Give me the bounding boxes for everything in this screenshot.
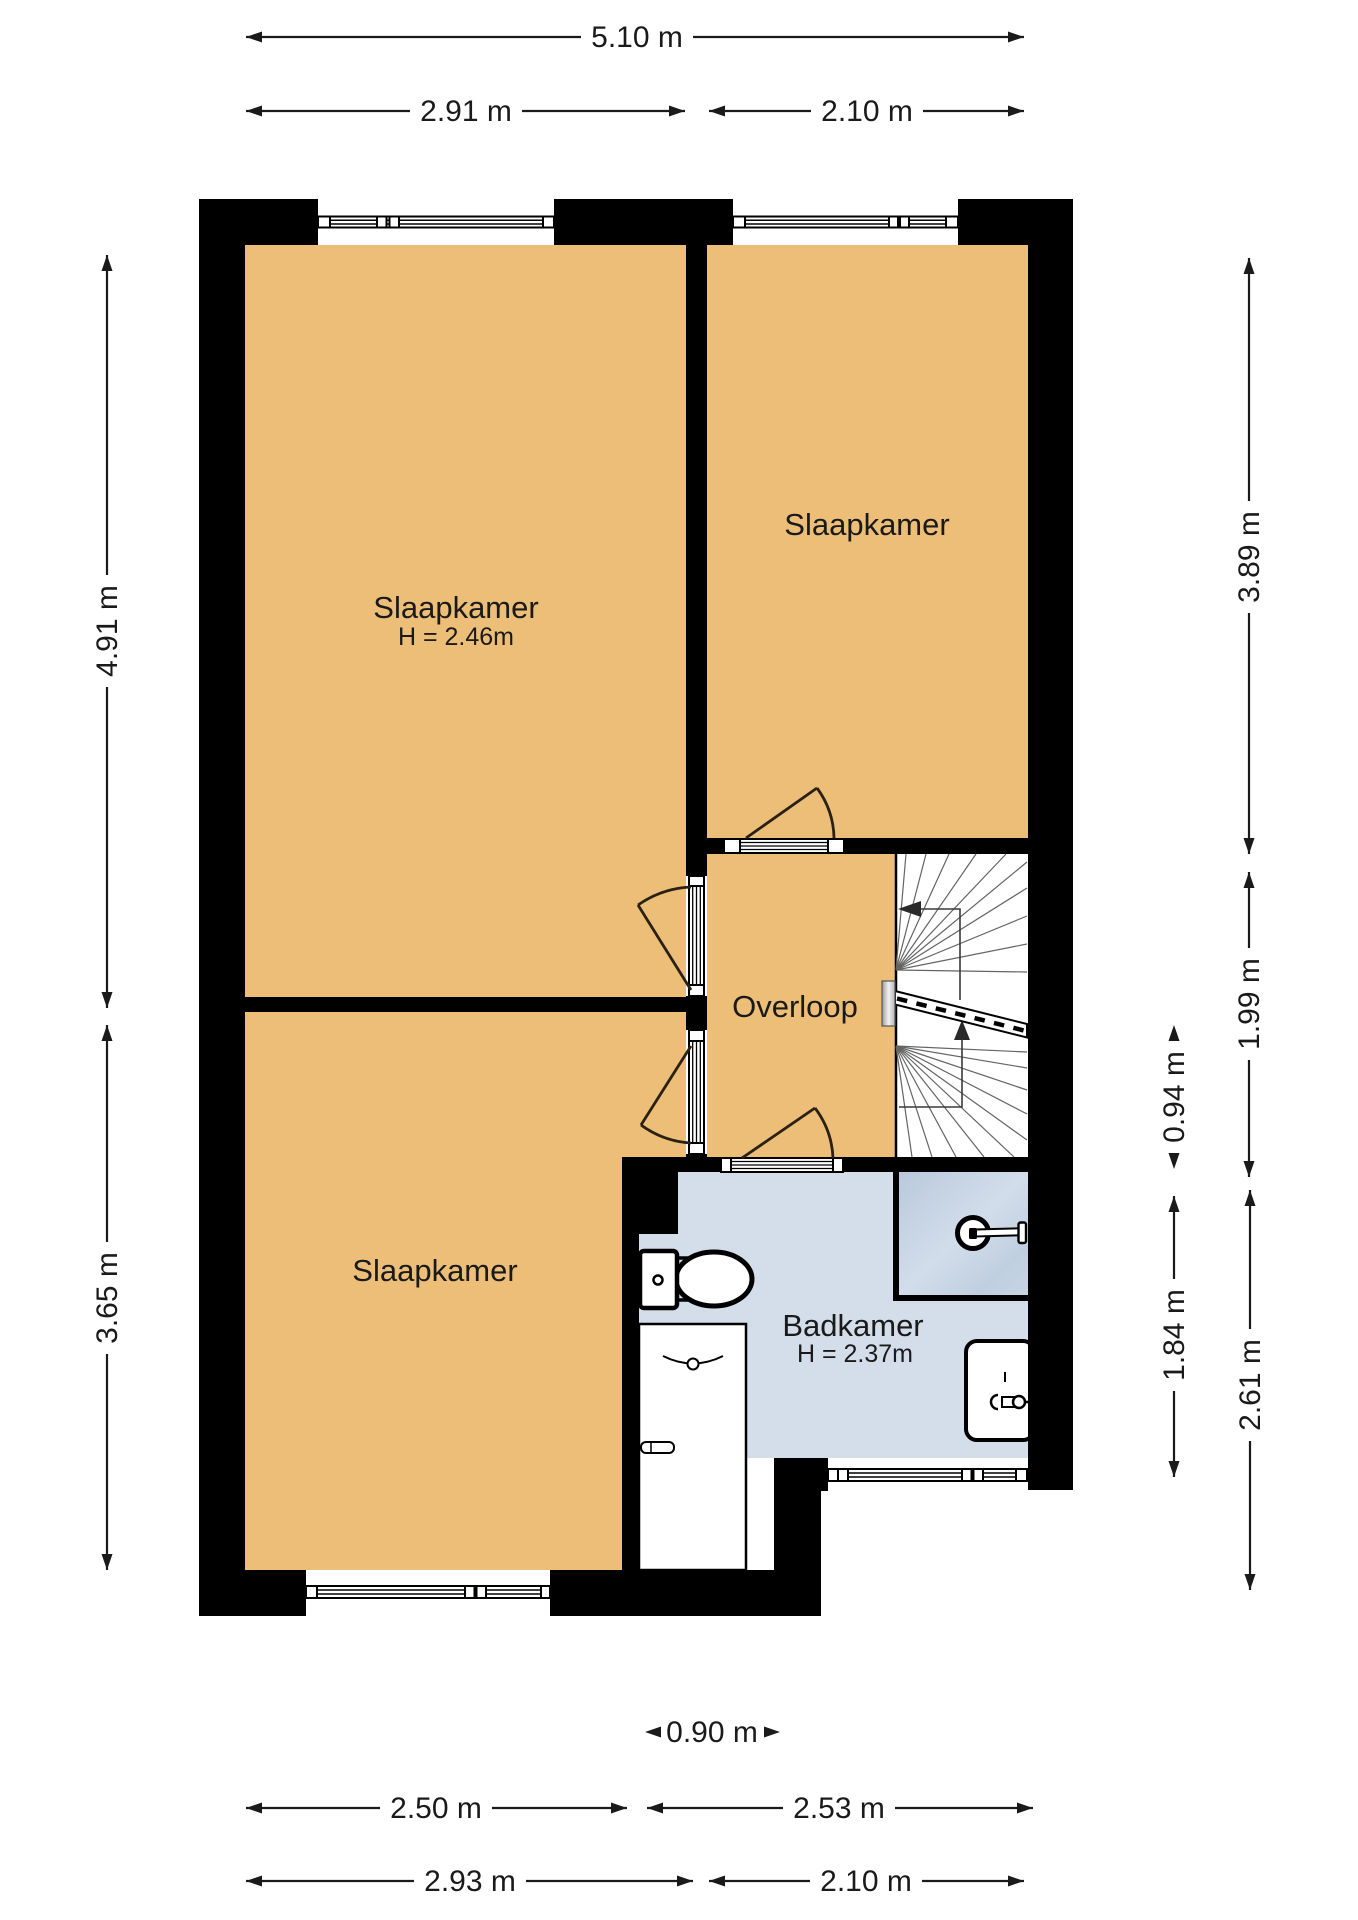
svg-text:2.10 m: 2.10 m	[821, 95, 913, 128]
svg-text:2.93 m: 2.93 m	[424, 1865, 516, 1898]
svg-text:3.65 m: 3.65 m	[91, 1252, 124, 1344]
svg-text:1.99 m: 1.99 m	[1233, 958, 1266, 1050]
svg-text:2.50 m: 2.50 m	[390, 1792, 482, 1825]
svg-text:2.53 m: 2.53 m	[793, 1792, 885, 1825]
svg-text:Overloop: Overloop	[732, 989, 858, 1024]
svg-text:Badkamer: Badkamer	[782, 1308, 923, 1343]
svg-text:H = 2.37m: H = 2.37m	[797, 1340, 913, 1368]
svg-text:2.10 m: 2.10 m	[820, 1865, 912, 1898]
svg-text:2.91 m: 2.91 m	[420, 95, 512, 128]
svg-text:0.90 m: 0.90 m	[666, 1716, 758, 1749]
svg-text:2.61 m: 2.61 m	[1234, 1339, 1267, 1431]
svg-text:3.89 m: 3.89 m	[1233, 511, 1266, 603]
svg-text:Slaapkamer: Slaapkamer	[784, 507, 949, 542]
svg-text:1.84 m: 1.84 m	[1158, 1289, 1191, 1381]
svg-text:5.10 m: 5.10 m	[591, 21, 683, 54]
svg-text:Slaapkamer: Slaapkamer	[352, 1253, 517, 1288]
svg-text:Slaapkamer: Slaapkamer	[373, 590, 538, 625]
svg-text:0.94 m: 0.94 m	[1158, 1051, 1191, 1143]
svg-text:4.91 m: 4.91 m	[91, 585, 124, 677]
svg-text:H = 2.46m: H = 2.46m	[398, 623, 514, 651]
